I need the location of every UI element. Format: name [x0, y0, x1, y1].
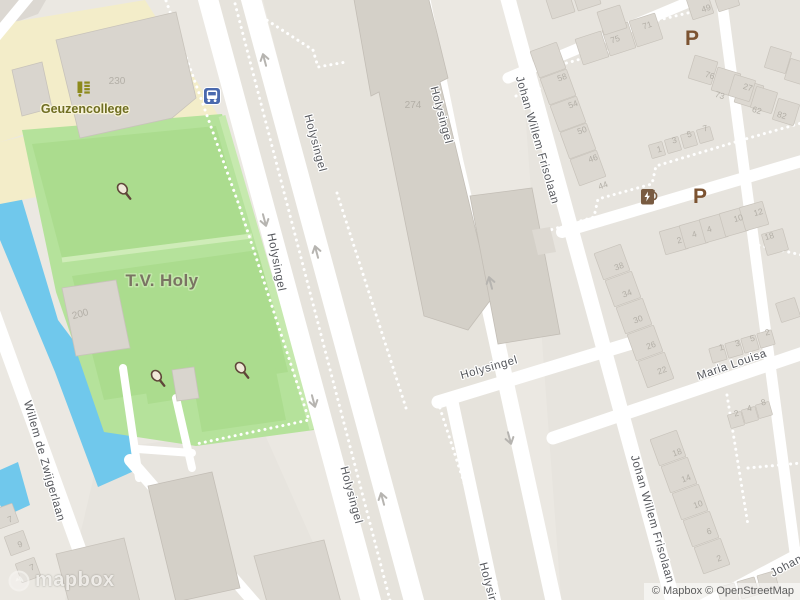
- parking-label: P: [693, 185, 707, 208]
- house-number: 230: [109, 76, 126, 87]
- mapbox-logo[interactable]: mapbox: [8, 569, 115, 592]
- map-svg: PP 2302742007571495854504644767327628213…: [0, 0, 800, 600]
- mapbox-logo-icon: [8, 570, 30, 592]
- school-poi-label: Geuzencollege: [41, 102, 129, 116]
- house-number: 274: [405, 100, 422, 111]
- parking-label: P: [685, 27, 699, 50]
- mapbox-logo-text: mapbox: [35, 569, 115, 592]
- map-canvas[interactable]: PP 2302742007571495854504644767327628213…: [0, 0, 800, 600]
- tennis-club-label: T.V. Holy: [126, 271, 199, 290]
- bus-stop-icon: [204, 88, 221, 105]
- attribution[interactable]: © Mapbox © OpenStreetMap: [644, 583, 800, 600]
